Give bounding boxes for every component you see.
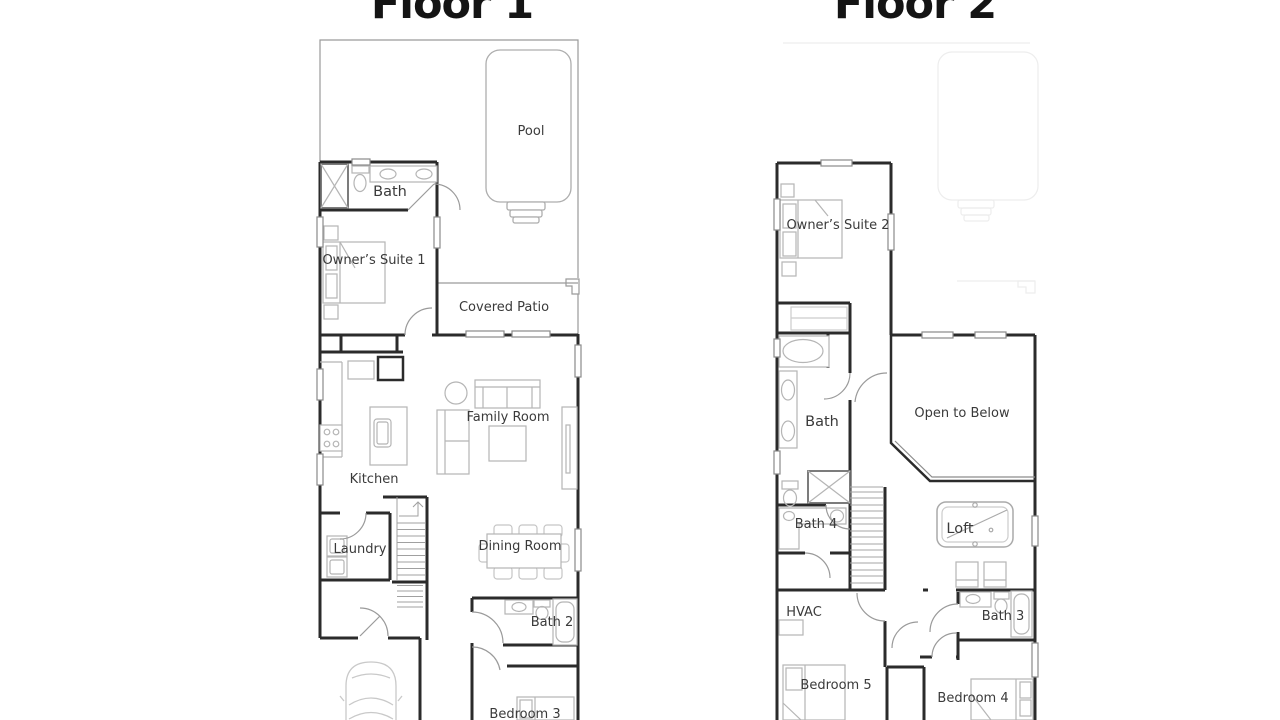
label-dining-room: Dining Room [478,540,561,554]
label-bath-3: Bath 3 [982,610,1025,624]
label-family-room: Family Room [467,411,550,425]
label-owners-suite-2: Owner’s Suite 2 [786,219,889,233]
label-laundry: Laundry [334,543,387,557]
label-kitchen: Kitchen [350,473,399,487]
garage-car [340,662,402,720]
label-covered-patio: Covered Patio [459,301,549,315]
floor1-title: Floor 1 [371,0,533,26]
label-bedroom-4: Bedroom 4 [937,692,1008,706]
floor2-stairs [850,487,883,583]
label-bedroom-3: Bedroom 3 [489,708,560,720]
floor2-title: Floor 2 [834,0,996,26]
label-hvac: HVAC [786,606,822,620]
label-bath-2: Bath 2 [531,616,574,630]
label-loft: Loft [946,522,973,538]
label-open-to-below: Open to Below [914,407,1009,421]
floor-plan-page: Floor 1 [0,0,1280,720]
label-bath-4: Bath 4 [795,518,838,532]
label-pool: Pool [518,125,545,139]
label-bath-f2: Bath [805,415,839,431]
floor1-fixtures [320,164,577,720]
label-owners-suite-1: Owner’s Suite 1 [322,254,425,268]
open-to-below-railing [895,441,1035,477]
label-bath: Bath [373,185,407,201]
label-bedroom-5: Bedroom 5 [800,679,871,693]
floor1-stairs [397,497,425,607]
